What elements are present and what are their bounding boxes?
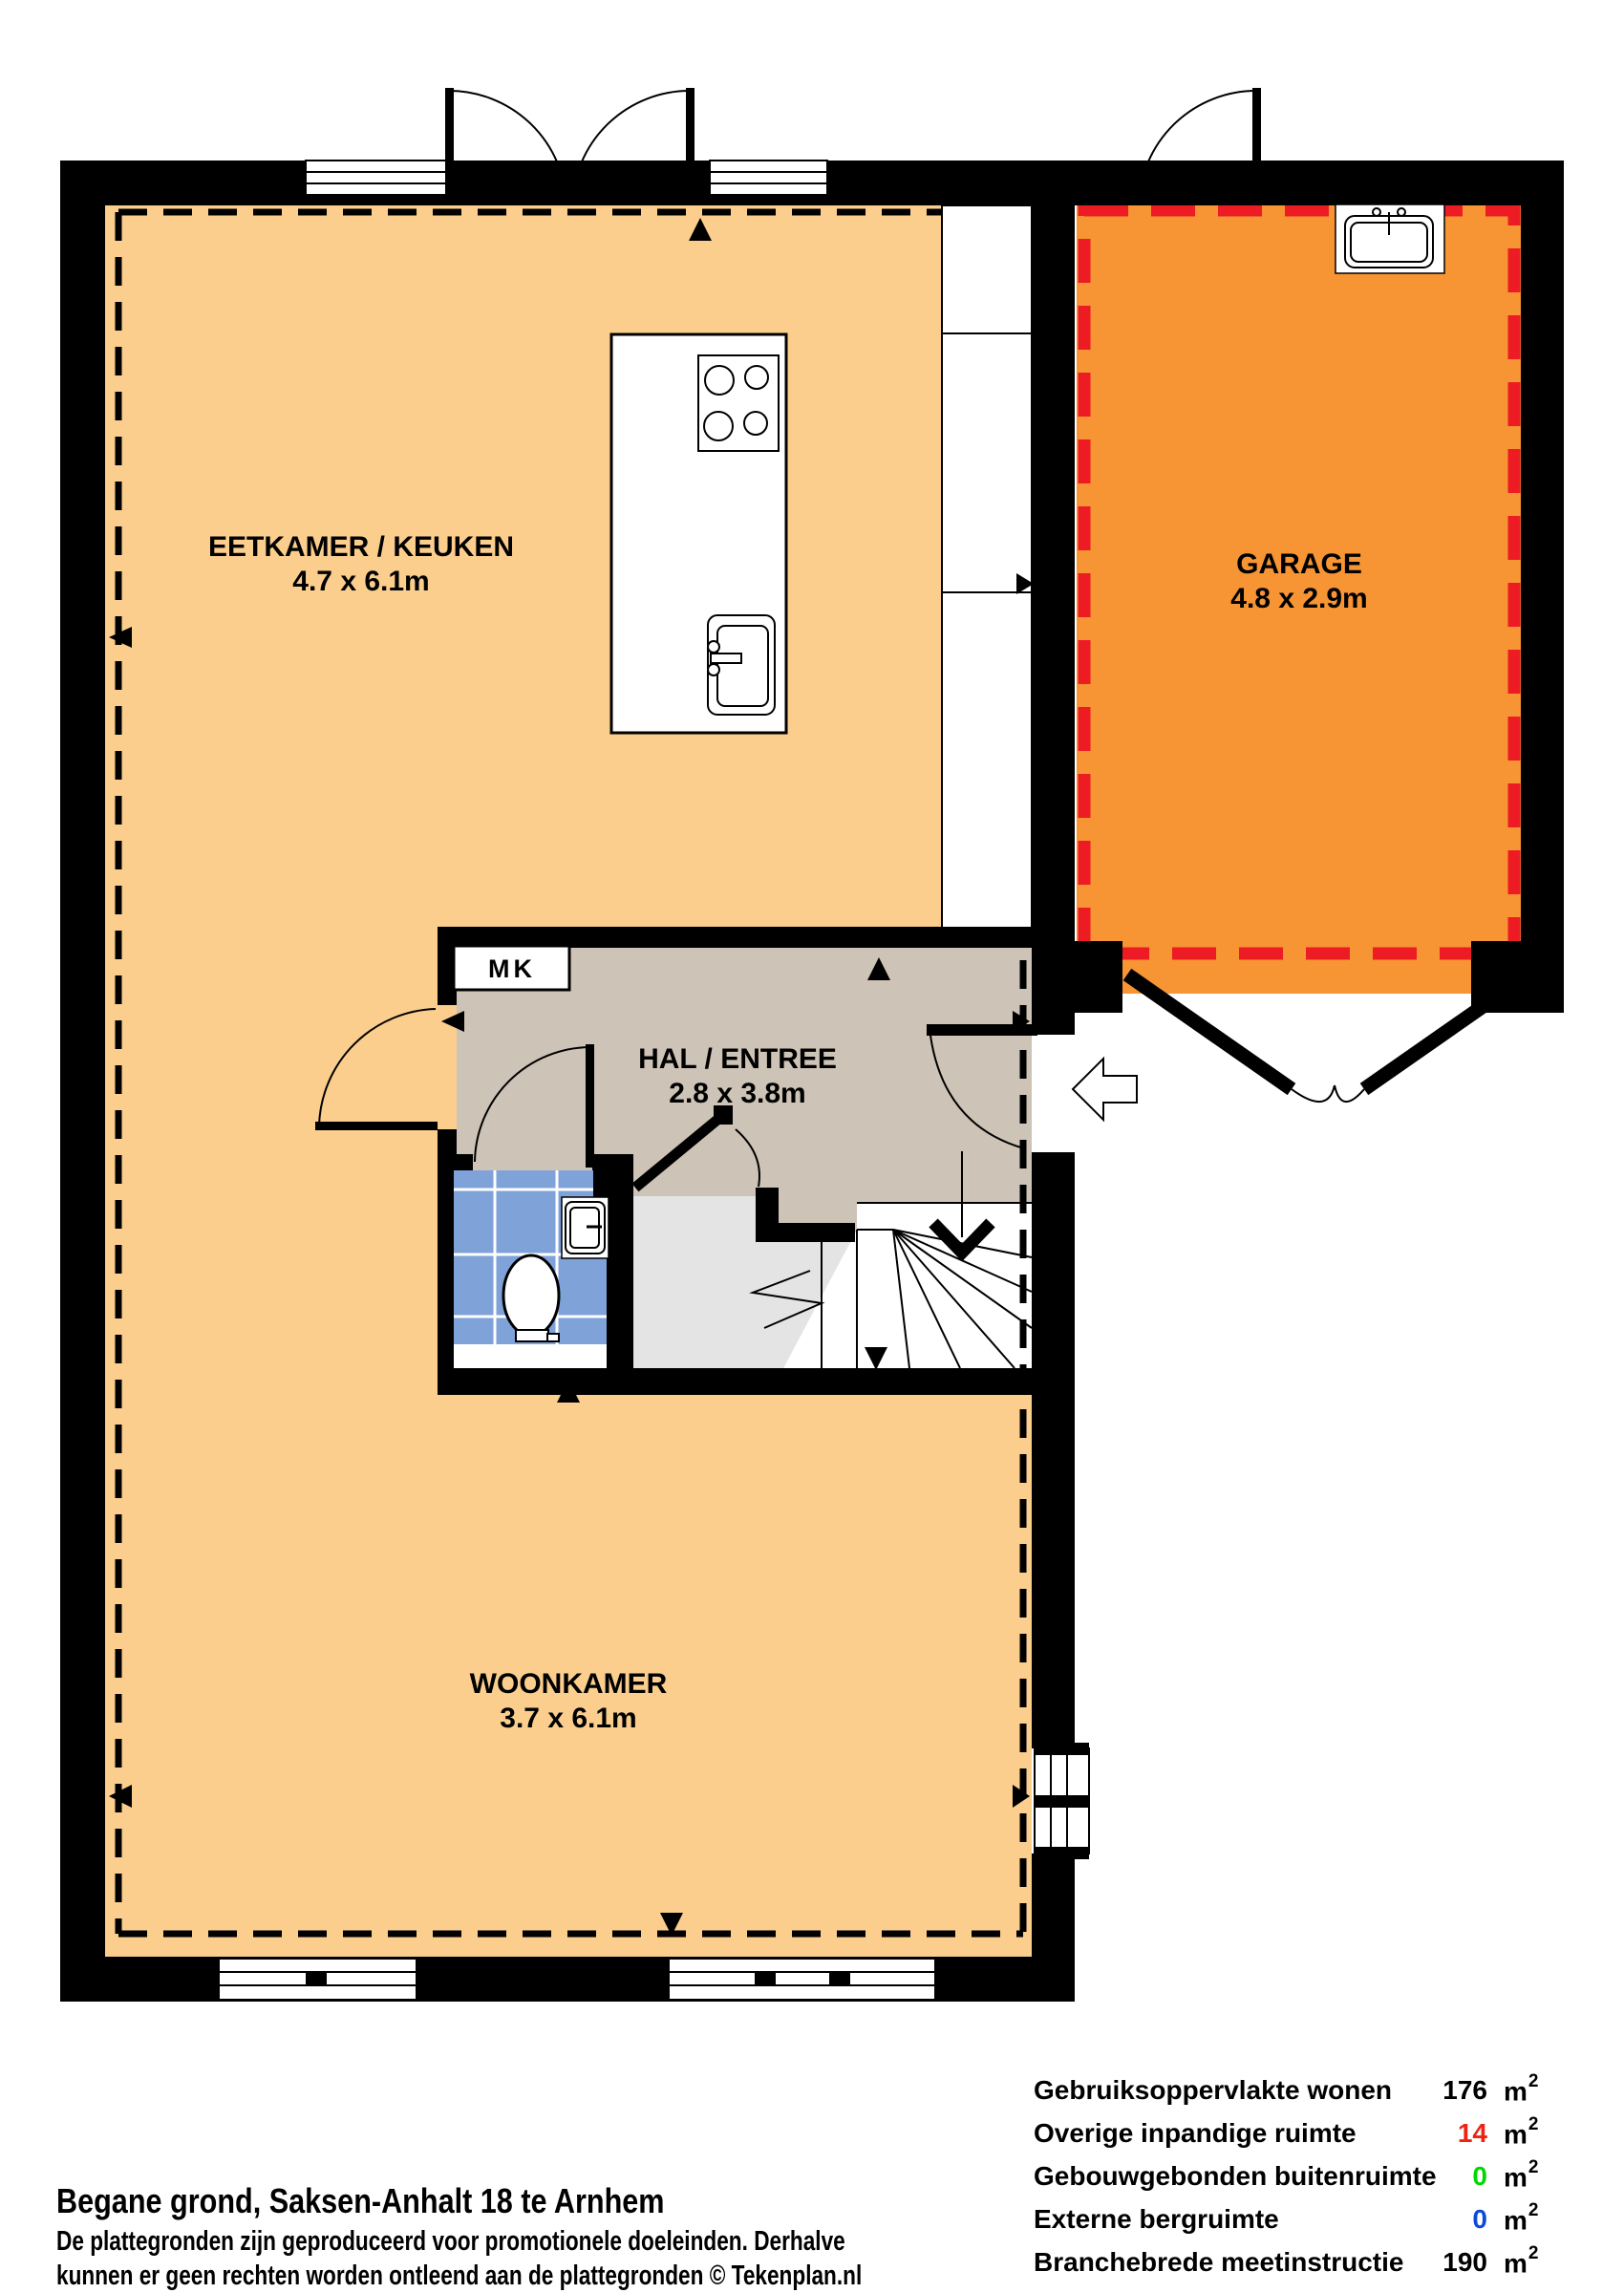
toilet-floor-strip <box>454 1344 607 1368</box>
room-label-hal: HAL / ENTREE <box>638 1043 837 1075</box>
wall-garage-post <box>1075 941 1122 1013</box>
garage-threshold <box>1122 965 1471 994</box>
room-dim-garage: 4.8 x 2.9m <box>1230 583 1367 614</box>
kitchen-sink-icon <box>708 615 775 715</box>
mk-label: MK <box>488 954 536 983</box>
wall-left <box>60 161 105 2002</box>
window-kitchen-top-right <box>710 161 827 195</box>
meter-closet: MK <box>454 946 569 990</box>
wall-right <box>1032 205 1075 1035</box>
room-label-eetkamer: EETKAMER / KEUKEN <box>208 531 514 563</box>
disclaimer-line-1: De plattegronden zijn geproduceerd voor … <box>56 2226 845 2258</box>
wall-hall-bottom <box>438 1368 1075 1395</box>
garage-sink-icon <box>1336 204 1444 273</box>
wall-stair-step <box>779 1223 855 1242</box>
wall-toilet-right <box>607 1154 633 1368</box>
room-label-woonkamer: WOONKAMER <box>470 1668 668 1700</box>
room-dim-woonkamer: 3.7 x 6.1m <box>500 1703 636 1734</box>
wall-right <box>1032 1854 1075 1957</box>
kitchen-island <box>611 334 786 733</box>
room-label-garage: GARAGE <box>1236 548 1362 580</box>
room-dim-hal: 2.8 x 3.8m <box>669 1078 805 1109</box>
page-title: Begane grond, Saksen-Anhalt 18 te Arnhem <box>56 2181 665 2221</box>
toilet-sink-icon <box>562 1197 609 1258</box>
door-threshold <box>473 1154 592 1170</box>
wall-hall-left <box>438 1129 457 1154</box>
window-livingroom-bottom-right <box>669 1959 935 2000</box>
wall-garage-right <box>1521 161 1564 1013</box>
disclaimer-line-2: kunnen er geen rechten worden ontleend a… <box>56 2261 862 2292</box>
room-dim-eetkamer: 4.7 x 6.1m <box>292 566 429 597</box>
floorplan-page: MK EETKAMER / KEUKEN 4.7 x 6.1m GARAGE 4… <box>0 0 1624 2293</box>
wall-pillar <box>593 1168 607 1200</box>
floorplan-drawing: MK EETKAMER / KEUKEN 4.7 x 6.1m GARAGE 4… <box>0 0 1624 2293</box>
window-livingroom-bottom-left <box>219 1959 417 2000</box>
wall-stair-step <box>756 1188 779 1242</box>
wall-right <box>1032 1152 1075 1748</box>
cooktop-icon <box>698 355 779 451</box>
wall-toilet-top <box>454 1154 473 1170</box>
wall-toilet-left <box>438 1154 454 1368</box>
window-kitchen-top-left <box>306 161 446 195</box>
window-livingroom-right <box>1035 1743 1089 1859</box>
entrance-arrow-icon <box>1073 1059 1137 1120</box>
kitchen-counter <box>942 205 1032 932</box>
